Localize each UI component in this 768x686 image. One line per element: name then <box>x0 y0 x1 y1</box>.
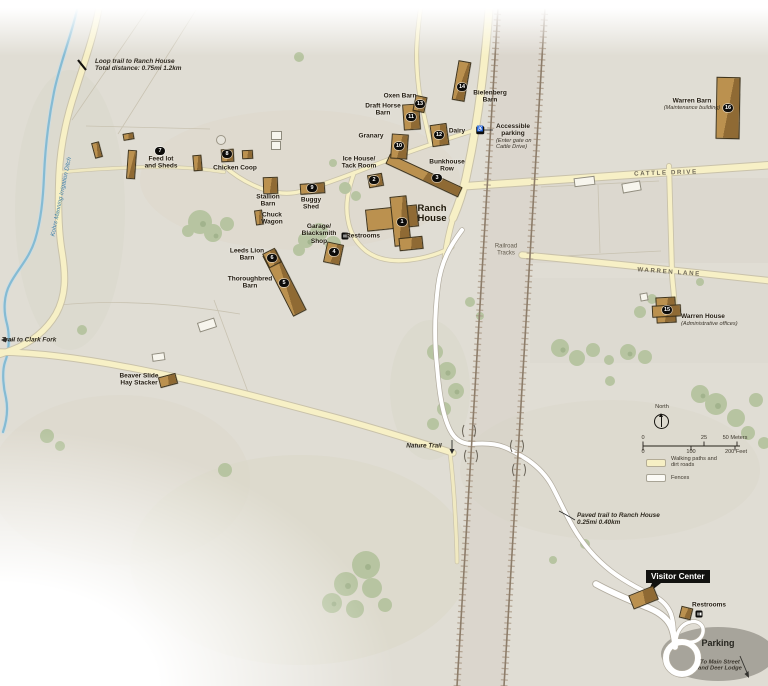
chicken-coop-label: Chicken Coop <box>213 164 257 171</box>
ranch-house-building <box>398 235 423 250</box>
warren-barn-label: Warren Barn <box>673 97 712 104</box>
accessible-parking-label: Accessible parking <box>496 123 530 138</box>
legend-walking-paths-label: Walking paths and dirt roads <box>671 456 717 469</box>
buggy-shed-label: Buggy Shed <box>301 197 321 212</box>
loop-trail-label: Loop trail to Ranch House Total distance… <box>95 58 181 72</box>
accessible-parking-icon: ♿ <box>476 126 484 134</box>
feed-lot-and-sheds-marker: 7 <box>155 147 165 155</box>
legend-fences-swatch <box>646 474 666 482</box>
legend-fences-label: Fences <box>671 475 689 481</box>
thoroughbred-barn-marker: 5 <box>279 279 289 287</box>
feed-lot-and-sheds-building <box>122 132 134 141</box>
leeds-lion-barn-label: Leeds Lion Barn <box>230 248 264 263</box>
parking-label: Parking <box>701 638 734 648</box>
scale-f-100-label: 100 <box>686 449 695 455</box>
beaver-slide-hay-stacker-label: Beaver Slide Hay Stacker <box>119 373 158 388</box>
ranch-site-map: Visitor Center 12345678910111213141516Lo… <box>0 0 768 686</box>
north-compass-icon <box>654 414 669 429</box>
chicken-coop-building <box>241 149 252 159</box>
buggy-shed-marker: 9 <box>307 184 317 192</box>
stallion-barn-building <box>262 176 278 194</box>
draft-horse-barn-marker: 11 <box>406 113 416 121</box>
accessible-parking-note-label: (Enter gate on Cattle Drive) <box>496 138 531 151</box>
granary-marker: 10 <box>394 142 404 150</box>
bunkhouse-row-label: Bunkhouse Row <box>429 159 464 174</box>
chicken-coop-marker: 8 <box>222 150 232 158</box>
shed-white-warren-building <box>639 292 648 301</box>
warren-house-marker: 15 <box>662 306 672 314</box>
granary-label: Granary <box>359 132 384 139</box>
scale-m-25-label: 25 <box>701 435 707 441</box>
thoroughbred-barn-label: Thoroughbred Barn <box>228 276 272 291</box>
vc-restrooms-label: Restrooms <box>692 601 726 608</box>
bielenberg-barn-label: Bielenberg Barn <box>473 90 507 105</box>
chuck-wagon-label: Chuck Wagon <box>261 212 282 227</box>
stallion-barn-label: Stallion Barn <box>256 194 279 209</box>
scale-f-200-label: 200 Feet <box>725 449 747 455</box>
draft-horse-barn-label: Draft Horse Barn <box>365 103 400 118</box>
scale-f-0-label: 0 <box>641 449 644 455</box>
ice-house-tack-room-label: Ice House/ Tack Room <box>342 156 377 171</box>
nature-trail-label: Nature Trail <box>406 442 441 449</box>
scale-m-50-label: 50 Meters <box>723 435 748 441</box>
bunkhouse-row-marker: 3 <box>432 174 442 182</box>
scale-m-0-label: 0 <box>641 435 644 441</box>
north-label: North <box>655 404 669 410</box>
railroad-tracks-label: Railroad Tracks <box>495 243 517 256</box>
dairy-label: Dairy <box>449 127 465 134</box>
shed-white-north-building <box>271 141 281 150</box>
warren-barn-marker: 16 <box>723 104 733 112</box>
shed-white-north-building <box>271 131 282 140</box>
dairy-marker: 12 <box>434 131 444 139</box>
oxen-barn-marker: 13 <box>415 100 425 108</box>
paved-trail-label: Paved trail to Ranch House 0.25mi 0.40km <box>577 512 660 526</box>
to-main-street-label: To Main Street and Deer Lodge <box>698 660 742 673</box>
oxen-barn-label: Oxen Barn <box>384 92 417 99</box>
trail-to-clark-fork-label: Trail to Clark Fork <box>2 336 57 343</box>
warren-barn-note-label: (Maintenance building) <box>664 105 721 111</box>
warren-house-label: Warren House <box>681 313 725 320</box>
leeds-lion-barn-marker: 6 <box>267 254 277 262</box>
vc-restrooms-icon <box>696 611 703 618</box>
ranch-house-label: Ranch House <box>417 204 446 224</box>
bielenberg-barn-marker: 14 <box>457 83 467 91</box>
shed-white-cattle-building <box>573 175 595 186</box>
feed-lot-and-sheds-label: Feed lot and Sheds <box>145 156 178 171</box>
shed-white-beaver-building <box>151 352 165 362</box>
garage-blacksmith-shop-marker: 4 <box>329 248 339 256</box>
garage-blacksmith-shop-label: Garage/ Blacksmith Shop <box>302 223 337 245</box>
warren-house-note-label: (Administrative offices) <box>681 321 738 327</box>
ranch-restrooms-label: Restrooms <box>346 232 380 239</box>
feed-lot-and-sheds-building <box>192 155 202 172</box>
ranch-house-marker: 1 <box>397 218 407 226</box>
feed-lot-and-sheds-building <box>125 149 136 179</box>
ice-house-tack-room-marker: 2 <box>369 176 379 184</box>
legend-walking-paths-swatch <box>646 459 666 467</box>
visitor-center-tag: Visitor Center <box>646 570 710 583</box>
